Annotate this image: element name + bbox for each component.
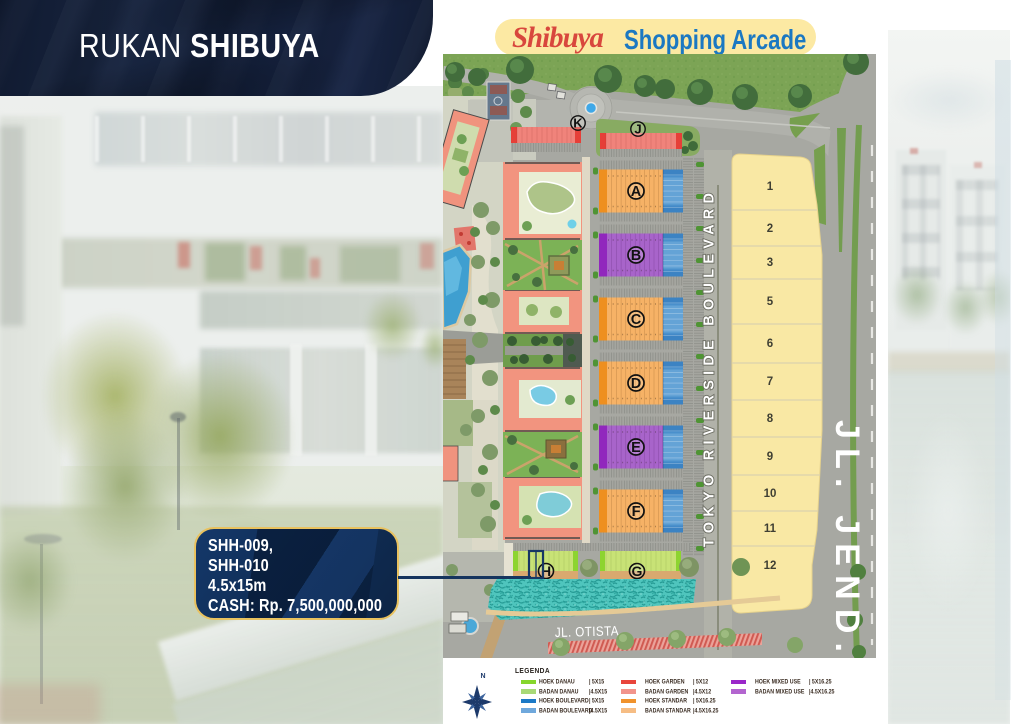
svg-text:3: 3	[767, 257, 773, 269]
svg-text:2: 2	[767, 223, 773, 235]
svg-text:6: 6	[767, 338, 773, 350]
svg-text:1: 1	[767, 181, 774, 193]
svg-text:E: E	[631, 440, 641, 456]
svg-text:F: F	[632, 504, 641, 520]
svg-text:A: A	[631, 184, 642, 200]
svg-text:9: 9	[767, 451, 773, 463]
svg-text:G: G	[632, 563, 643, 579]
svg-text:5: 5	[767, 296, 774, 308]
svg-text:12: 12	[764, 560, 777, 572]
svg-text:7: 7	[767, 376, 773, 388]
svg-text:C: C	[631, 312, 642, 328]
svg-text:JL. OTISTA: JL. OTISTA	[555, 623, 619, 640]
svg-text:N: N	[480, 673, 485, 680]
svg-text:B: B	[631, 248, 641, 264]
svg-text:J: J	[634, 122, 641, 137]
svg-text:10: 10	[764, 488, 777, 500]
svg-text:K: K	[573, 116, 583, 131]
svg-text:D: D	[631, 376, 641, 392]
svg-text:11: 11	[764, 523, 777, 535]
svg-text:8: 8	[767, 413, 774, 425]
